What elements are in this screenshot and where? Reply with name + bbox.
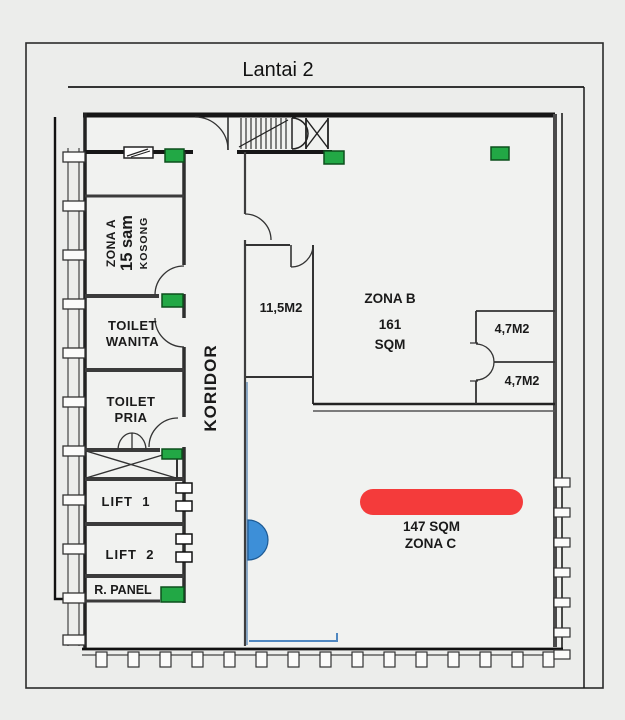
- floor-plan-image: Lantai 2 ZONA A 15 sam KOSONG KORIDOR TO…: [0, 0, 625, 720]
- toilet-wanita-line2: WANITA: [106, 334, 159, 349]
- toilet-wanita-line1: TOILET: [108, 318, 157, 333]
- toilet-pria-label: TOILETPRIA: [84, 394, 178, 425]
- zona-a-status: KOSONG: [138, 217, 151, 270]
- wall-column-hatches: [63, 152, 85, 645]
- toilet-pria-line2: PRIA: [114, 410, 147, 425]
- zona-a-label: ZONA A 15 sam KOSONG: [92, 193, 162, 293]
- lift-2-label: LIFT 2: [86, 547, 174, 563]
- zona-c-name: ZONA C: [378, 536, 483, 552]
- zona-c-area: 147 SQM: [379, 519, 484, 535]
- r-panel-label: R. PANEL: [84, 583, 162, 598]
- exit-marker-icon: [491, 147, 509, 160]
- exit-marker-icon: [165, 149, 184, 162]
- vent-icon: [124, 147, 153, 158]
- zona-b-area-value: 161: [340, 317, 440, 333]
- toilet-wanita-label: TOILETWANITA: [84, 318, 181, 349]
- toilet-pria-line1: TOILET: [107, 394, 156, 409]
- lift-1-label: LIFT 1: [84, 494, 168, 510]
- koridor-label: KORIDOR: [200, 328, 222, 448]
- zona-b-name: ZONA B: [338, 291, 442, 307]
- exit-marker-icon: [162, 294, 183, 307]
- room-11-5m2-label: 11,5M2: [245, 300, 317, 316]
- room-4-7m2-lower-label: 4,7M2: [482, 374, 562, 389]
- exit-marker-icon: [162, 449, 182, 459]
- exit-marker-icon: [324, 151, 344, 164]
- zona-c-highlight-pill: [360, 489, 523, 515]
- bottom-column-hatches: [96, 652, 554, 667]
- room-4-7m2-upper-label: 4,7M2: [472, 322, 552, 337]
- zona-a-name: ZONA A: [104, 219, 118, 267]
- page-title: Lantai 2: [178, 59, 378, 82]
- left-column-wall: [63, 148, 85, 646]
- exit-marker-icon: [161, 587, 184, 602]
- zona-b-area-unit: SQM: [340, 337, 440, 353]
- floor-plan-linework: [0, 0, 625, 720]
- zona-a-area: 15 sam: [118, 215, 138, 271]
- koridor-text: KORIDOR: [201, 344, 221, 431]
